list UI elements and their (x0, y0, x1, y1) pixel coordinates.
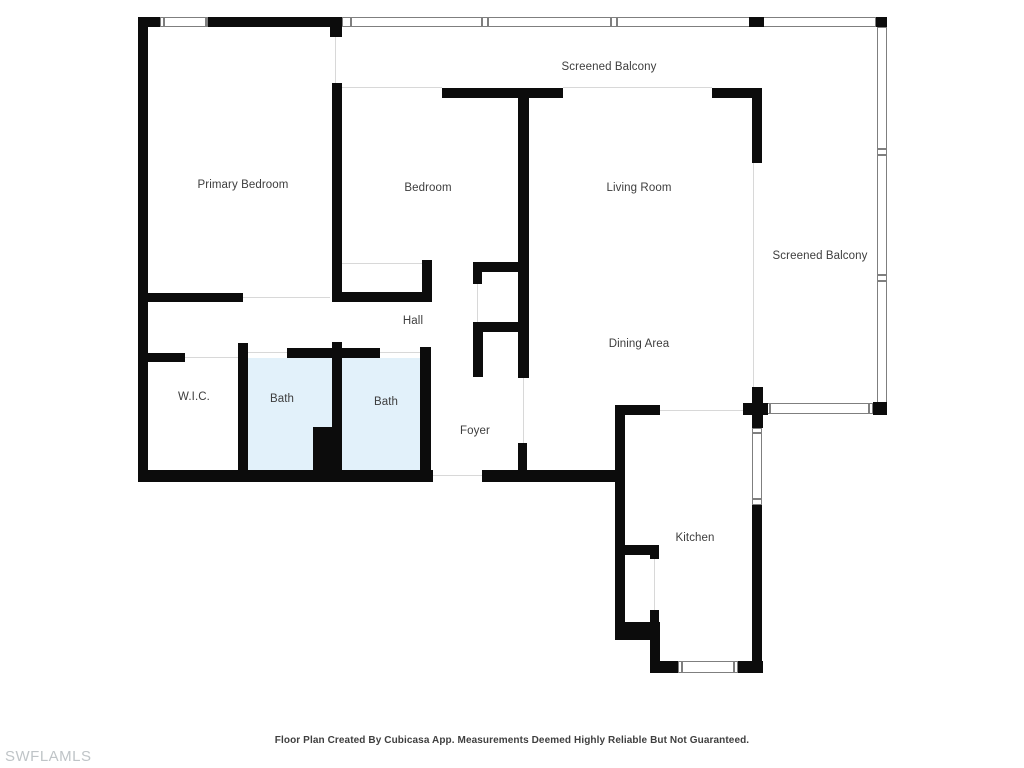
window-glyph (767, 403, 873, 414)
wall-segment (615, 405, 625, 640)
wall-segment (650, 545, 659, 559)
boundary-line (342, 87, 442, 88)
wall-segment (482, 470, 615, 482)
window-mullion-tick (163, 17, 165, 27)
wall-segment (873, 402, 887, 415)
wall-segment (138, 17, 160, 27)
boundary-line (660, 410, 743, 411)
boundary-line (477, 282, 478, 322)
window-mullion-tick (487, 17, 489, 27)
wall-segment (332, 83, 342, 302)
boundary-line (335, 37, 336, 83)
wall-segment (330, 27, 342, 37)
wall-segment (752, 505, 762, 673)
window-glyph (678, 661, 738, 673)
room-label-bath-1: Bath (270, 393, 294, 405)
boundary-line (248, 352, 287, 353)
wall-segment (473, 322, 483, 377)
wall-segment (287, 348, 332, 358)
window-mullion-tick (610, 17, 612, 27)
wall-segment (712, 88, 762, 98)
window-mullion-tick (752, 432, 762, 434)
room-label-bath-2: Bath (374, 396, 398, 408)
room-label-foyer: Foyer (460, 425, 490, 437)
wall-segment (650, 661, 678, 673)
wall-segment (615, 622, 660, 640)
boundary-line (433, 475, 482, 476)
floor-plan: Screened BalconyPrimary BedroomBedroomLi… (0, 0, 1024, 768)
window-mullion-tick (681, 661, 683, 673)
room-label-wic: W.I.C. (178, 391, 210, 403)
wall-segment (876, 17, 887, 27)
window-mullion-tick (205, 17, 207, 27)
room-label-living-room: Living Room (606, 182, 671, 194)
window-mullion-tick (868, 403, 870, 414)
room-label-screened-balcony-right: Screened Balcony (773, 250, 868, 262)
boundary-line (753, 163, 754, 387)
room-label-bedroom: Bedroom (404, 182, 451, 194)
wall-segment (518, 97, 529, 378)
wall-segment (650, 610, 659, 622)
window-mullion-tick (877, 274, 887, 276)
window-mullion-tick (616, 17, 618, 27)
room-label-screened-balcony-top: Screened Balcony (562, 61, 657, 73)
wall-segment (477, 322, 519, 332)
window-mullion-tick (752, 498, 762, 500)
window-glyph (160, 17, 208, 27)
wall-segment (420, 347, 431, 480)
window-mullion-tick (769, 403, 771, 414)
wall-segment (518, 443, 527, 476)
wall-segment (338, 292, 432, 302)
wall-segment (749, 17, 764, 27)
window-glyph (752, 428, 762, 505)
wall-segment (743, 403, 768, 415)
wall-segment (473, 262, 519, 272)
window-mullion-tick (350, 17, 352, 27)
boundary-line (563, 87, 712, 88)
window-mullion-tick (877, 280, 887, 282)
window-mullion-tick (733, 661, 735, 673)
wall-segment (208, 17, 342, 27)
wall-segment (238, 343, 248, 480)
wall-segment (473, 272, 482, 284)
window-mullion-tick (877, 154, 887, 156)
wall-segment (422, 260, 432, 302)
window-glyph (342, 17, 876, 27)
wall-segment (442, 88, 563, 98)
footer-disclaimer: Floor Plan Created By Cubicasa App. Meas… (0, 735, 1024, 746)
wall-segment (342, 348, 380, 358)
room-label-primary-bedroom: Primary Bedroom (198, 179, 289, 191)
window-mullion-tick (877, 148, 887, 150)
wall-segment (138, 470, 433, 482)
room-label-dining-area: Dining Area (609, 338, 670, 350)
boundary-line (342, 263, 422, 264)
boundary-line (523, 378, 524, 443)
floor-plan-page: Screened BalconyPrimary BedroomBedroomLi… (0, 0, 1024, 768)
window-mullion-tick (481, 17, 483, 27)
wall-segment (752, 98, 762, 163)
wall-segment (147, 293, 243, 302)
wall-segment (138, 17, 148, 482)
boundary-line (654, 559, 655, 610)
room-label-kitchen: Kitchen (675, 532, 714, 544)
boundary-line (185, 357, 238, 358)
room-label-hall: Hall (403, 315, 423, 327)
window-glyph (877, 27, 887, 403)
boundary-line (380, 352, 420, 353)
wall-segment (313, 427, 338, 473)
bath-floor-fill (342, 358, 420, 470)
wall-segment (147, 353, 185, 362)
boundary-line (243, 297, 330, 298)
mls-watermark: SWFLAMLS (5, 748, 92, 765)
